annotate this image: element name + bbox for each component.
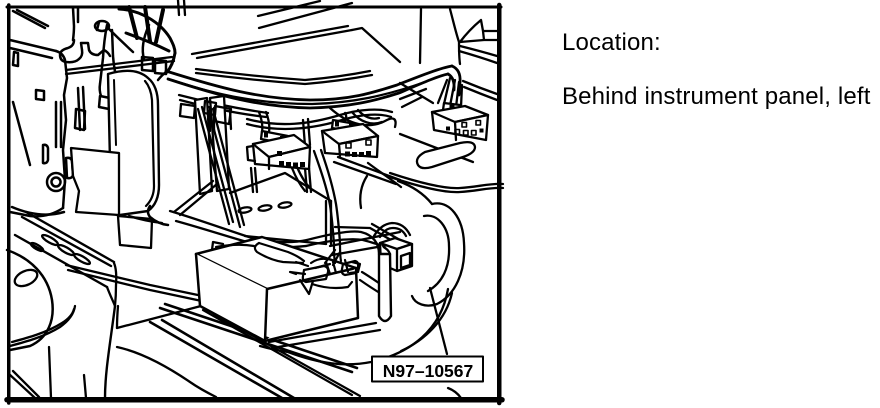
svg-text:N97–10567: N97–10567 — [383, 361, 474, 381]
